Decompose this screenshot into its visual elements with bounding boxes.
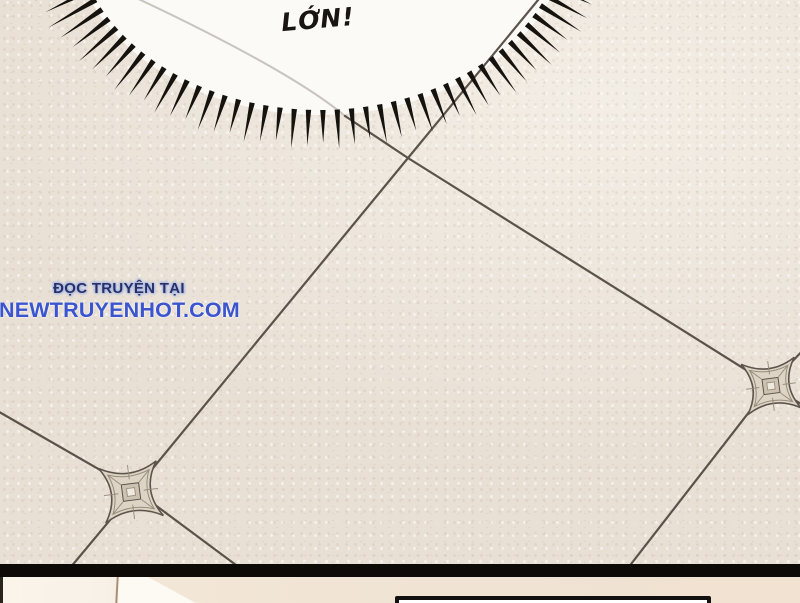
tile-ornament-left (99, 461, 164, 523)
ornament-core (767, 382, 775, 390)
watermark: ĐỌC TRUYỆN TẠI NEWTRUYENHOT.COM (0, 280, 239, 323)
comic-page: LỚN! ĐỌC TRUYỆN TẠI NEWTRUYENHOT.COM (0, 0, 800, 603)
tile-ornament-right (741, 357, 800, 415)
ornament-core (127, 488, 136, 497)
watermark-tagline: ĐỌC TRUYỆN TẠI (0, 280, 239, 297)
watermark-sitename: NEWTRUYENHOT.COM (0, 298, 239, 323)
page-edge-shadow (0, 577, 3, 603)
caption-box-top (395, 596, 711, 603)
panel-divider (0, 564, 800, 577)
grout-line-b (345, 116, 800, 407)
